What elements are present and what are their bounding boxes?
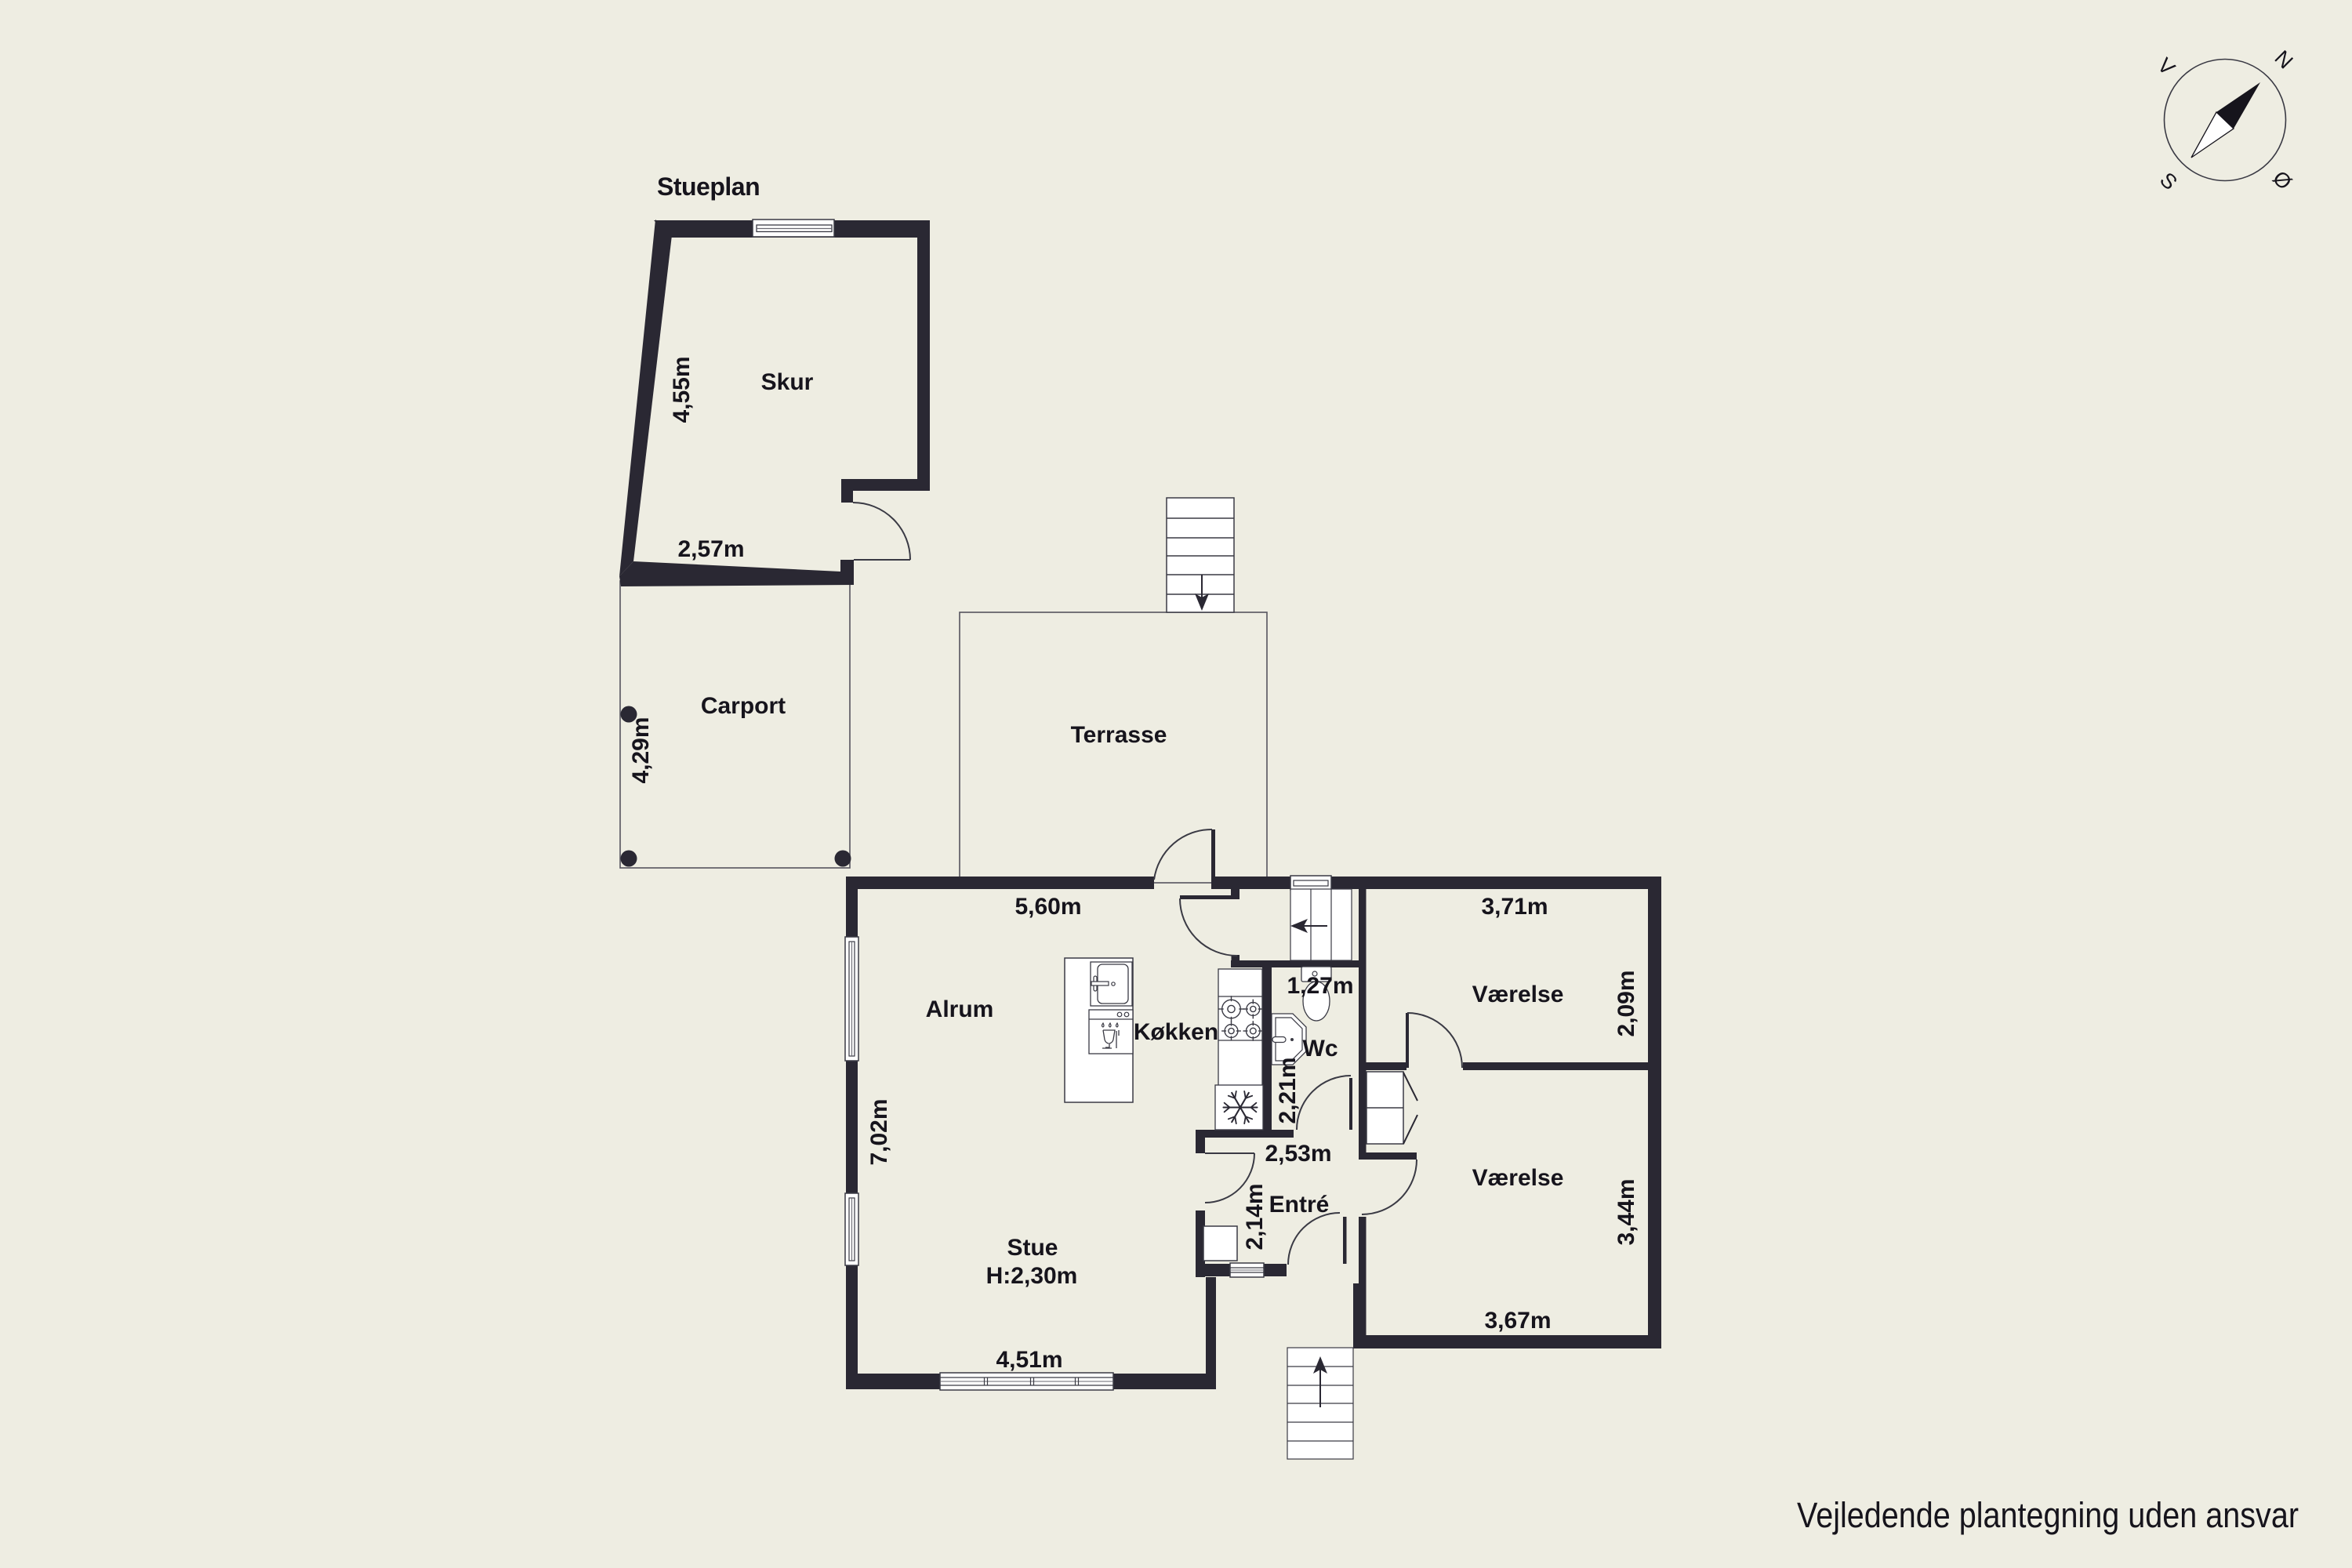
- svg-text:Entré: Entré: [1269, 1192, 1330, 1218]
- svg-text:2,21m: 2,21m: [1275, 1057, 1301, 1123]
- svg-text:Stueplan: Stueplan: [657, 172, 760, 201]
- svg-text:3,44m: 3,44m: [1613, 1178, 1639, 1245]
- svg-text:2,14m: 2,14m: [1242, 1183, 1268, 1250]
- svg-text:2,57m: 2,57m: [677, 536, 744, 562]
- svg-text:4,55m: 4,55m: [669, 356, 695, 423]
- svg-text:Carport: Carport: [701, 693, 786, 719]
- svg-text:Værelse: Værelse: [1472, 1165, 1564, 1191]
- svg-text:5,60m: 5,60m: [1014, 894, 1081, 920]
- svg-text:Stue: Stue: [1007, 1235, 1058, 1261]
- svg-text:Alrum: Alrum: [926, 996, 994, 1022]
- svg-text:1,27m: 1,27m: [1287, 973, 1353, 999]
- svg-text:Skur: Skur: [761, 369, 814, 395]
- svg-text:Køkken: Køkken: [1134, 1019, 1218, 1045]
- svg-text:2,53m: 2,53m: [1265, 1141, 1331, 1167]
- svg-text:3,71m: 3,71m: [1481, 894, 1548, 920]
- svg-text:H:2,30m: H:2,30m: [986, 1263, 1078, 1289]
- svg-text:2,09m: 2,09m: [1613, 970, 1639, 1036]
- svg-text:4,51m: 4,51m: [996, 1347, 1062, 1373]
- svg-text:4,29m: 4,29m: [628, 717, 654, 783]
- svg-text:Vejledende plantegning uden an: Vejledende plantegning uden ansvar: [1797, 1495, 2299, 1535]
- svg-text:7,02m: 7,02m: [866, 1098, 892, 1165]
- svg-text:Wc: Wc: [1303, 1036, 1338, 1062]
- svg-text:Terrasse: Terrasse: [1071, 722, 1167, 748]
- svg-text:3,67m: 3,67m: [1484, 1308, 1551, 1334]
- svg-text:Værelse: Værelse: [1472, 982, 1564, 1007]
